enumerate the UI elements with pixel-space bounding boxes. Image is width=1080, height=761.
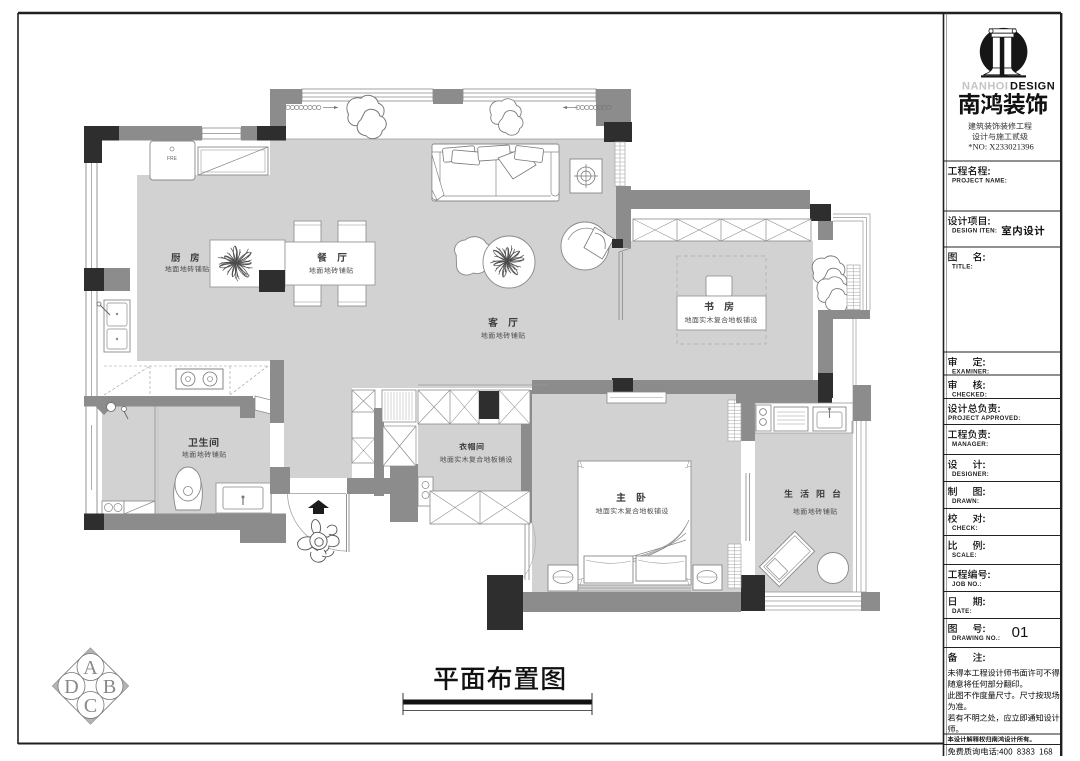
svg-text:MANAGER:: MANAGER: xyxy=(952,441,988,448)
svg-text:A: A xyxy=(83,657,98,679)
svg-text:D: D xyxy=(64,676,78,698)
svg-text:NANHOI: NANHOI xyxy=(962,81,1008,93)
svg-text:DATE:: DATE: xyxy=(952,608,972,615)
svg-text:SCALE:: SCALE: xyxy=(952,552,977,559)
svg-text:TITLE:: TITLE: xyxy=(952,264,973,271)
svg-text:PROJECT NAME:: PROJECT NAME: xyxy=(952,178,1007,185)
svg-text:PROJECT APPROVED:: PROJECT APPROVED: xyxy=(948,415,1021,422)
svg-text:DRAWING NO.:: DRAWING NO.: xyxy=(952,635,1000,642)
svg-text:01: 01 xyxy=(1012,624,1029,641)
svg-text:DESIGN: DESIGN xyxy=(1010,81,1055,93)
svg-text:JOB NO.:: JOB NO.: xyxy=(952,581,982,588)
svg-text:C: C xyxy=(84,695,97,717)
svg-text:DRAWN:: DRAWN: xyxy=(952,498,979,505)
svg-text:DESIGN ITEN:: DESIGN ITEN: xyxy=(952,228,997,235)
svg-text:B: B xyxy=(103,676,116,698)
svg-text:DESIGNER:: DESIGNER: xyxy=(952,471,989,478)
svg-text:*NO: X233021396: *NO: X233021396 xyxy=(968,142,1033,152)
svg-text:FRE: FRE xyxy=(167,156,178,162)
svg-text:CHECK:: CHECK: xyxy=(952,525,978,532)
svg-text:CHECKED:: CHECKED: xyxy=(952,392,987,399)
